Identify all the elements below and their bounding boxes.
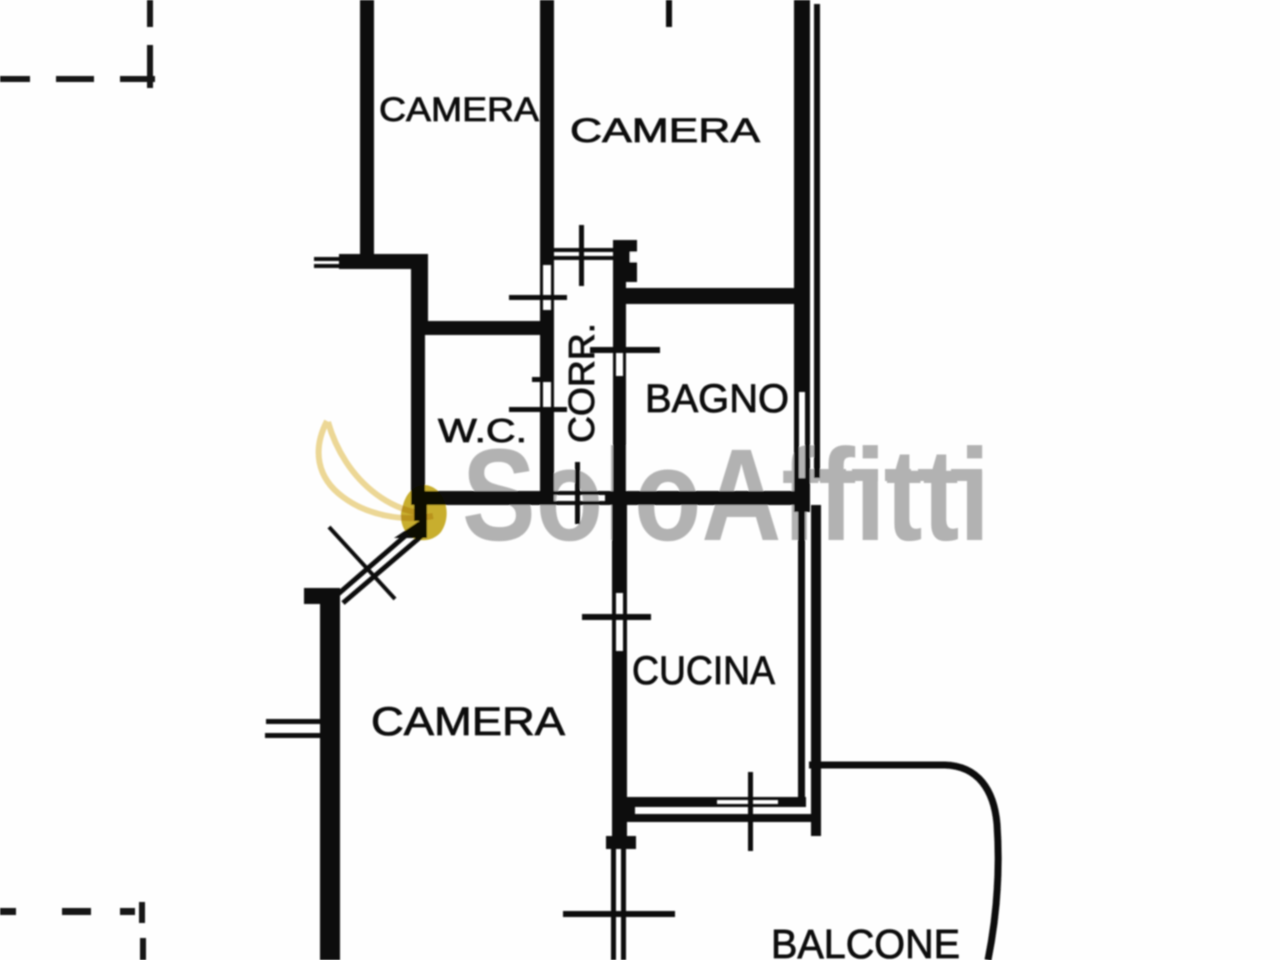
svg-text:W.C.: W.C. bbox=[438, 412, 527, 449]
svg-text:BAGNO: BAGNO bbox=[645, 377, 789, 421]
svg-text:CUCINA: CUCINA bbox=[632, 649, 775, 693]
svg-text:BALCONE: BALCONE bbox=[771, 921, 960, 960]
svg-text:CAMERA: CAMERA bbox=[371, 700, 565, 744]
svg-text:CAMERA: CAMERA bbox=[570, 112, 760, 150]
svg-text:CORR.: CORR. bbox=[561, 323, 602, 443]
svg-text:CAMERA: CAMERA bbox=[379, 91, 539, 129]
